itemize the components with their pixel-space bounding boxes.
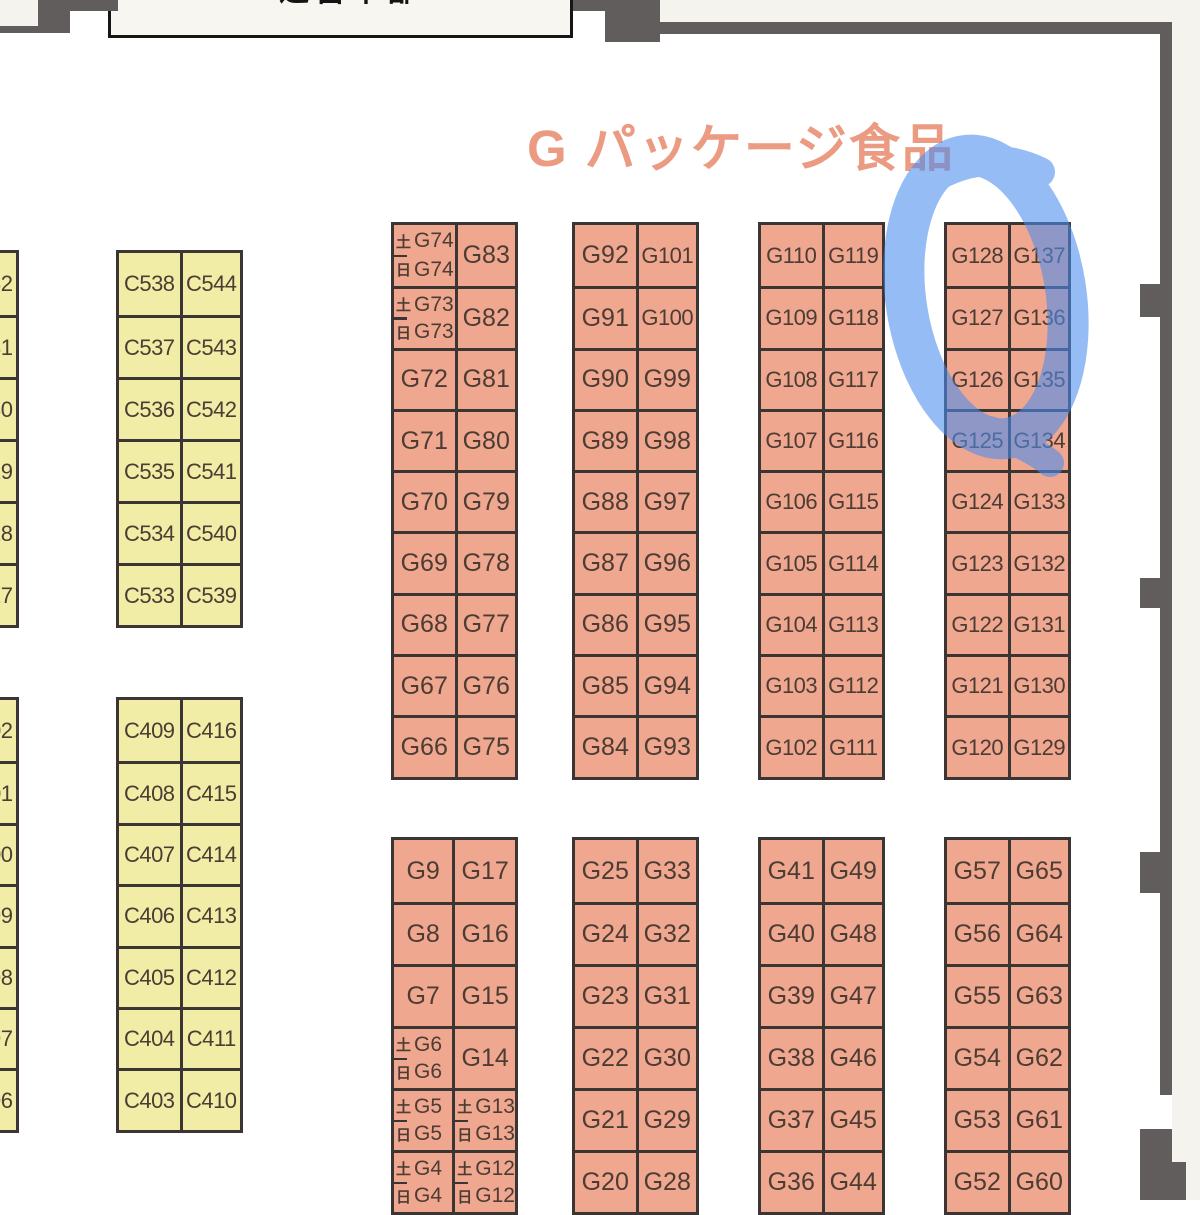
booth-cell-label: G85 <box>582 672 629 701</box>
booth-cell-label: G65 <box>1016 857 1063 886</box>
booth-block: C402C401C400C399C398C397C396 <box>0 697 19 1133</box>
booth-cell-label: C396 <box>0 1088 13 1114</box>
booth-cell: G63 <box>1008 964 1069 1026</box>
booth-cell-label: 土G5 <box>394 1093 452 1121</box>
booth-cell: C534 <box>119 501 180 563</box>
booth-cell: C535 <box>119 439 180 501</box>
booth-cell: C403 <box>119 1068 180 1129</box>
booth-cell: C539 <box>180 563 241 625</box>
booth-cell: C530 <box>0 377 16 439</box>
booth-cell-label: C413 <box>186 903 237 929</box>
booth-cell: C404 <box>119 1007 180 1068</box>
outside-area <box>660 0 1172 22</box>
booth-cell-label: 土G12 <box>455 1155 515 1183</box>
split-divider <box>455 1182 468 1185</box>
day-prefix-label: 土 <box>457 1096 472 1117</box>
booth-cell: C401 <box>0 761 16 822</box>
booth-cell-label: G95 <box>644 610 691 639</box>
booth-cell-label: G47 <box>830 982 877 1011</box>
booth-cell-label: G31 <box>644 982 691 1011</box>
wall-segment <box>1140 1129 1172 1200</box>
booth-cell-label: G109 <box>765 305 817 331</box>
booth-cell-label: G113 <box>828 612 878 638</box>
booth-cell: G46 <box>822 1026 883 1088</box>
booth-cell: G15 <box>452 964 515 1026</box>
booth-cell-label: 土G4 <box>394 1155 452 1183</box>
booth-cell: G37 <box>761 1088 822 1150</box>
booth-block: C409C416C408C415C407C414C406C413C405C412… <box>116 697 243 1133</box>
booth-cell-label: G98 <box>644 427 691 456</box>
wall-segment <box>0 26 70 33</box>
booth-cell: G119 <box>822 225 883 286</box>
booth-cell: G47 <box>822 964 883 1026</box>
booth-number-label: G73 <box>414 320 454 344</box>
booth-cell-label: G129 <box>1013 735 1065 761</box>
booth-cell-label: C529 <box>0 459 13 485</box>
booth-cell-label: G66 <box>401 733 448 762</box>
booth-cell-label: G20 <box>582 1168 629 1197</box>
booth-cell: C544 <box>180 253 241 315</box>
booth-cell: G30 <box>636 1026 697 1088</box>
booth-cell: C536 <box>119 377 180 439</box>
booth-cell: G53 <box>947 1088 1008 1150</box>
booth-block: G128G137G127G136G126G135G125G134G124G133… <box>944 222 1071 780</box>
booth-cell-label: G90 <box>582 365 629 394</box>
booth-cell-label: G53 <box>954 1106 1001 1135</box>
booth-number-label: G13 <box>475 1095 515 1119</box>
booth-cell-label: G62 <box>1016 1044 1063 1073</box>
booth-cell-label: G45 <box>830 1106 877 1135</box>
booth-cell: G87 <box>575 531 636 592</box>
booth-cell-label: G104 <box>765 612 817 638</box>
booth-cell: G72 <box>394 348 455 409</box>
booth-cell-label: C536 <box>124 397 175 423</box>
booth-cell: G135 <box>1008 348 1069 409</box>
booth-cell: G39 <box>761 964 822 1026</box>
booth-cell-label: C408 <box>124 781 175 807</box>
booth-cell-label: G80 <box>463 427 510 456</box>
booth-cell: G71 <box>394 409 455 470</box>
day-prefix-label: 日 <box>396 322 411 343</box>
booth-cell-label: G40 <box>768 920 815 949</box>
booth-cell-label: G72 <box>401 365 448 394</box>
booth-cell-label: G63 <box>1016 982 1063 1011</box>
booth-cell-label: 日G4 <box>394 1183 452 1211</box>
booth-cell-label: G75 <box>463 733 510 762</box>
booth-cell: C533 <box>119 563 180 625</box>
booth-cell: G38 <box>761 1026 822 1088</box>
booth-cell-label: G48 <box>830 920 877 949</box>
booth-cell: G78 <box>455 531 516 592</box>
booth-cell-label: G106 <box>765 489 817 515</box>
day-prefix-label: 土 <box>396 231 411 252</box>
booth-cell: G33 <box>636 840 697 902</box>
booth-cell: G56 <box>947 902 1008 964</box>
booth-cell: C529 <box>0 439 16 501</box>
booth-cell-label: G39 <box>768 982 815 1011</box>
booth-cell-label: G94 <box>644 672 691 701</box>
booth-cell-label: G28 <box>644 1168 691 1197</box>
booth-cell: G25 <box>575 840 636 902</box>
booth-number-label: G5 <box>414 1095 442 1119</box>
booth-cell: G96 <box>636 531 697 592</box>
booth-number-label: G12 <box>475 1157 515 1181</box>
booth-cell: G116 <box>822 409 883 470</box>
booth-cell-label: G44 <box>830 1168 877 1197</box>
booth-cell: C409 <box>119 700 180 761</box>
booth-cell: G98 <box>636 409 697 470</box>
booth-block: G57G65G56G64G55G63G54G62G53G61G52G60 <box>944 837 1071 1215</box>
booth-cell-label: C398 <box>0 965 13 991</box>
booth-cell: G9 <box>394 840 452 902</box>
booth-cell-label: G118 <box>828 305 878 331</box>
hq-box-label: 運営本部 <box>279 0 423 7</box>
booth-cell-label: C404 <box>124 1026 175 1052</box>
booth-cell-label: G117 <box>828 367 878 393</box>
booth-cell: G92 <box>575 225 636 286</box>
booth-cell: G132 <box>1008 531 1069 592</box>
booth-cell-label: G23 <box>582 982 629 1011</box>
booth-cell-label: C537 <box>124 335 175 361</box>
booth-cell-label: G100 <box>641 305 693 331</box>
booth-block: G92G101G91G100G90G99G89G98G88G97G87G96G8… <box>572 222 699 780</box>
booth-cell: G28 <box>636 1150 697 1212</box>
booth-cell-label: G81 <box>463 365 510 394</box>
booth-cell: G133 <box>1008 470 1069 531</box>
booth-cell-label: G7 <box>406 982 439 1011</box>
booth-cell-label: C414 <box>186 842 237 868</box>
booth-cell-label: G32 <box>644 920 691 949</box>
booth-cell-label: G126 <box>951 367 1003 393</box>
booth-cell-label: G112 <box>828 673 878 699</box>
day-prefix-label: 日 <box>396 1062 411 1083</box>
booth-cell-label: G101 <box>641 243 693 269</box>
day-prefix-label: 日 <box>457 1124 472 1145</box>
booth-cell: 土G13日G13 <box>452 1088 515 1150</box>
booth-cell-label: G115 <box>828 489 878 515</box>
booth-cell-label: 日G73 <box>394 318 455 345</box>
booth-number-label: G6 <box>414 1060 442 1084</box>
booth-cell: C531 <box>0 315 16 377</box>
booth-cell-label: G127 <box>951 305 1003 331</box>
booth-cell: G62 <box>1008 1026 1069 1088</box>
booth-cell: G128 <box>947 225 1008 286</box>
booth-cell: C538 <box>119 253 180 315</box>
booth-cell-label: 土G6 <box>394 1031 452 1059</box>
booth-cell: G54 <box>947 1026 1008 1088</box>
booth-cell-label: G136 <box>1013 305 1065 331</box>
booth-cell-label: G67 <box>401 672 448 701</box>
booth-cell-label: G56 <box>954 920 1001 949</box>
booth-cell: G90 <box>575 348 636 409</box>
booth-cell-label: G116 <box>828 428 878 454</box>
booth-cell-label: G36 <box>768 1168 815 1197</box>
booth-cell-label: C406 <box>124 903 175 929</box>
booth-cell-label: G105 <box>765 551 817 577</box>
booth-cell: G8 <box>394 902 452 964</box>
booth-cell: 土G5日G5 <box>394 1088 452 1150</box>
booth-cell-label: G55 <box>954 982 1001 1011</box>
booth-cell-label: G87 <box>582 549 629 578</box>
booth-cell: G111 <box>822 715 883 776</box>
booth-cell-label: G64 <box>1016 920 1063 949</box>
booth-cell-label: G86 <box>582 610 629 639</box>
booth-cell: C541 <box>180 439 241 501</box>
booth-cell-label: G99 <box>644 365 691 394</box>
booth-cell-label: C402 <box>0 718 13 744</box>
booth-cell-label: G96 <box>644 549 691 578</box>
booth-cell-label: G125 <box>951 428 1003 454</box>
booth-cell: 土G12日G12 <box>452 1150 515 1212</box>
split-divider <box>455 1120 468 1123</box>
booth-cell: 土G74日G74 <box>394 225 455 286</box>
booth-cell-label: C399 <box>0 903 13 929</box>
booth-cell: G57 <box>947 840 1008 902</box>
booth-cell-label: G15 <box>462 982 509 1011</box>
day-prefix-label: 土 <box>396 294 411 315</box>
booth-cell-label: G29 <box>644 1106 691 1135</box>
booth-cell: G22 <box>575 1026 636 1088</box>
booth-cell-label: C407 <box>124 842 175 868</box>
booth-cell-label: G121 <box>951 673 1003 699</box>
split-divider <box>394 1120 407 1123</box>
booth-cell-label: G79 <box>463 488 510 517</box>
booth-cell: G93 <box>636 715 697 776</box>
booth-cell: G21 <box>575 1088 636 1150</box>
booth-cell-label: G60 <box>1016 1168 1063 1197</box>
booth-cell: G36 <box>761 1150 822 1212</box>
booth-cell-label: G38 <box>768 1044 815 1073</box>
booth-cell-label: G91 <box>582 304 629 333</box>
booth-cell-label: G110 <box>766 243 816 269</box>
booth-cell-label: 日G13 <box>455 1121 515 1149</box>
booth-cell: G125 <box>947 409 1008 470</box>
booth-cell-label: C543 <box>186 335 237 361</box>
booth-block: 土G74日G74G83土G73日G73G82G72G81G71G80G70G79… <box>391 222 518 780</box>
booth-cell: C414 <box>180 823 241 884</box>
booth-cell: G76 <box>455 654 516 715</box>
booth-cell-label: C544 <box>186 271 237 297</box>
booth-cell: C405 <box>119 946 180 1007</box>
booth-cell-label: C531 <box>0 335 13 361</box>
booth-cell: C416 <box>180 700 241 761</box>
booth-number-label: G73 <box>414 293 454 317</box>
booth-cell-label: G130 <box>1013 673 1065 699</box>
booth-cell-label: C415 <box>186 781 237 807</box>
day-prefix-label: 土 <box>457 1158 472 1179</box>
booth-cell: G61 <box>1008 1088 1069 1150</box>
day-prefix-label: 土 <box>396 1034 411 1055</box>
booth-block: G41G49G40G48G39G47G38G46G37G45G36G44 <box>758 837 885 1215</box>
booth-cell: G44 <box>822 1150 883 1212</box>
day-prefix-label: 土 <box>396 1096 411 1117</box>
booth-cell-label: 土G13 <box>455 1093 515 1121</box>
booth-cell-label: G30 <box>644 1044 691 1073</box>
booth-cell-label: C538 <box>124 271 175 297</box>
booth-cell-label: C403 <box>124 1088 175 1114</box>
booth-cell: G80 <box>455 409 516 470</box>
booth-cell: G88 <box>575 470 636 531</box>
booth-cell: C410 <box>180 1068 241 1129</box>
booth-cell-label: G37 <box>768 1106 815 1135</box>
booth-number-label: G74 <box>414 229 454 253</box>
booth-cell: G101 <box>636 225 697 286</box>
booth-cell: G105 <box>761 531 822 592</box>
booth-cell: 土G6日G6 <box>394 1026 452 1088</box>
booth-cell: G118 <box>822 286 883 347</box>
booth-cell: G137 <box>1008 225 1069 286</box>
booth-cell-label: C416 <box>186 718 237 744</box>
booth-cell-label: C541 <box>186 459 237 485</box>
booth-cell-label: G122 <box>951 612 1003 638</box>
booth-cell-label: C410 <box>186 1088 237 1114</box>
day-prefix-label: 日 <box>396 1186 411 1207</box>
booth-cell: C407 <box>119 823 180 884</box>
wall-segment <box>1170 1162 1186 1200</box>
booth-cell-label: G21 <box>582 1106 629 1135</box>
booth-cell: G14 <box>452 1026 515 1088</box>
booth-cell-label: C401 <box>0 781 13 807</box>
booth-cell-label: C532 <box>0 271 13 297</box>
booth-cell-label: G137 <box>1013 243 1065 269</box>
booth-cell: G48 <box>822 902 883 964</box>
booth-cell: G114 <box>822 531 883 592</box>
booth-cell-label: G92 <box>582 241 629 270</box>
booth-cell: C406 <box>119 884 180 945</box>
booth-cell-label: G33 <box>644 857 691 886</box>
booth-cell: C398 <box>0 946 16 1007</box>
wall-segment <box>1160 22 1172 1095</box>
booth-cell: G124 <box>947 470 1008 531</box>
booth-cell-label: G102 <box>765 735 817 761</box>
booth-cell: G99 <box>636 348 697 409</box>
booth-cell: G64 <box>1008 902 1069 964</box>
booth-cell: G97 <box>636 470 697 531</box>
booth-cell-label: G82 <box>463 304 510 333</box>
split-divider <box>394 317 407 320</box>
booth-cell-label: 日G12 <box>455 1183 515 1211</box>
booth-cell: C411 <box>180 1007 241 1068</box>
booth-cell-label: G24 <box>582 920 629 949</box>
booth-block: G110G119G109G118G108G117G107G116G106G115… <box>758 222 885 780</box>
booth-cell: G117 <box>822 348 883 409</box>
booth-cell: G126 <box>947 348 1008 409</box>
booth-cell-label: G54 <box>954 1044 1001 1073</box>
booth-cell: G121 <box>947 654 1008 715</box>
booth-cell: C415 <box>180 761 241 822</box>
booth-cell: G110 <box>761 225 822 286</box>
booth-cell: G66 <box>394 715 455 776</box>
booth-cell: G100 <box>636 286 697 347</box>
booth-cell-label: G120 <box>951 735 1003 761</box>
booth-cell-label: C411 <box>187 1026 236 1052</box>
booth-cell: C399 <box>0 884 16 945</box>
booth-cell: G40 <box>761 902 822 964</box>
booth-cell-label: C542 <box>186 397 237 423</box>
wall-segment <box>1140 578 1162 608</box>
booth-cell: G136 <box>1008 286 1069 347</box>
booth-cell-label: G111 <box>829 735 878 761</box>
day-prefix-label: 日 <box>396 1124 411 1145</box>
booth-number-label: G74 <box>414 258 454 282</box>
booth-cell-label: G49 <box>830 857 877 886</box>
booth-cell: G31 <box>636 964 697 1026</box>
booth-cell-label: G107 <box>765 428 817 454</box>
booth-cell: G65 <box>1008 840 1069 902</box>
booth-cell: C527 <box>0 563 16 625</box>
booth-cell-label: G119 <box>828 243 878 269</box>
wall-segment <box>650 22 1172 34</box>
booth-cell-label: G71 <box>401 427 448 456</box>
booth-cell-label: C527 <box>0 583 13 609</box>
booth-cell-label: G76 <box>463 672 510 701</box>
booth-cell: G16 <box>452 902 515 964</box>
booth-cell: G84 <box>575 715 636 776</box>
booth-cell: C540 <box>180 501 241 563</box>
booth-cell-label: C412 <box>186 965 237 991</box>
booth-cell: G86 <box>575 593 636 654</box>
booth-cell: G69 <box>394 531 455 592</box>
booth-cell: G45 <box>822 1088 883 1150</box>
booth-cell-label: G97 <box>644 488 691 517</box>
booth-cell-label: G134 <box>1013 428 1065 454</box>
booth-cell-label: G41 <box>768 857 815 886</box>
booth-cell-label: G133 <box>1013 489 1065 515</box>
booth-cell: G70 <box>394 470 455 531</box>
booth-cell: G52 <box>947 1150 1008 1212</box>
booth-cell: G67 <box>394 654 455 715</box>
day-prefix-label: 日 <box>457 1186 472 1207</box>
booth-cell-label: G70 <box>401 488 448 517</box>
outside-area <box>0 0 38 26</box>
booth-cell-label: G124 <box>951 489 1003 515</box>
booth-cell: G7 <box>394 964 452 1026</box>
booth-cell: G123 <box>947 531 1008 592</box>
booth-cell: C396 <box>0 1068 16 1129</box>
day-prefix-label: 日 <box>396 259 411 280</box>
booth-cell-label: G83 <box>463 241 510 270</box>
split-divider <box>394 1058 407 1061</box>
booth-number-label: G6 <box>414 1033 442 1057</box>
floor-map: { "title": { "text": "G パッケージ食品" }, "top… <box>0 0 1200 1200</box>
booth-cell-label: G57 <box>954 857 1001 886</box>
booth-cell-label: G61 <box>1016 1106 1063 1135</box>
booth-cell: G24 <box>575 902 636 964</box>
booth-cell-label: G9 <box>406 857 439 886</box>
wall-segment <box>1140 852 1162 893</box>
booth-cell: G79 <box>455 470 516 531</box>
booth-cell: G23 <box>575 964 636 1026</box>
booth-cell-label: C409 <box>124 718 175 744</box>
booth-cell: G106 <box>761 470 822 531</box>
wall-segment <box>1140 284 1162 317</box>
booth-cell-label: G131 <box>1013 612 1065 638</box>
booth-cell: C528 <box>0 501 16 563</box>
outside-area <box>1172 0 1200 1200</box>
booth-cell-label: G128 <box>951 243 1003 269</box>
booth-cell-label: 日G5 <box>394 1121 452 1149</box>
booth-cell: C413 <box>180 884 241 945</box>
booth-cell-label: G89 <box>582 427 629 456</box>
booth-number-label: G13 <box>475 1122 515 1146</box>
booth-cell: G55 <box>947 964 1008 1026</box>
booth-cell: G83 <box>455 225 516 286</box>
booth-cell: G95 <box>636 593 697 654</box>
booth-cell: C402 <box>0 700 16 761</box>
booth-cell: G82 <box>455 286 516 347</box>
booth-cell: G89 <box>575 409 636 470</box>
hq-box: 運営本部 <box>108 0 573 38</box>
